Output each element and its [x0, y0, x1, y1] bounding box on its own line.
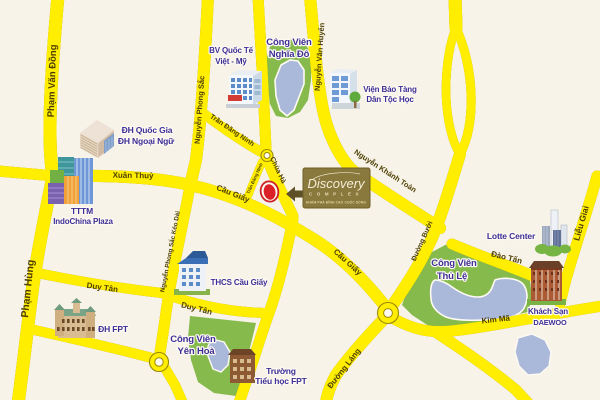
svg-text:Trường: Trường — [266, 366, 296, 376]
svg-text:KHÁM PHÁ ĐỈNH CAO CUỘC SỐNG: KHÁM PHÁ ĐỈNH CAO CUỘC SỐNG — [306, 200, 367, 205]
svg-text:Công Viên: Công Viên — [266, 37, 312, 48]
svg-text:Công Viên: Công Viên — [431, 258, 477, 269]
svg-text:Dân Tộc Học: Dân Tộc Học — [366, 95, 414, 104]
svg-text:Yên Hoà: Yên Hoà — [178, 346, 216, 357]
svg-text:Viện Bảo Tàng: Viện Bảo Tàng — [363, 85, 417, 94]
svg-text:THCS Cầu Giấy: THCS Cầu Giấy — [211, 278, 268, 287]
svg-text:BV Quốc Tế: BV Quốc Tế — [209, 46, 254, 55]
svg-text:Khách Sạn: Khách Sạn — [528, 307, 568, 316]
svg-text:Thủ Lệ: Thủ Lệ — [437, 271, 467, 282]
svg-text:IndoChina Plaza: IndoChina Plaza — [53, 217, 113, 226]
svg-text:DAEWOO: DAEWOO — [533, 318, 567, 327]
svg-text:COMPLEX: COMPLEX — [309, 192, 363, 197]
svg-text:ĐH FPT: ĐH FPT — [98, 324, 129, 334]
svg-text:Tiểu học FPT: Tiểu học FPT — [255, 376, 307, 386]
svg-text:Discovery: Discovery — [307, 176, 366, 191]
svg-text:Nghĩa Đô: Nghĩa Đô — [269, 49, 310, 60]
svg-text:ĐH Quốc Gia: ĐH Quốc Gia — [122, 125, 173, 135]
svg-text:TTTM: TTTM — [71, 206, 93, 216]
svg-text:Lotte Center: Lotte Center — [487, 231, 536, 241]
svg-text:Việt - Mỹ: Việt - Mỹ — [215, 57, 247, 66]
svg-text:Xuân Thuỷ: Xuân Thuỷ — [113, 171, 155, 181]
svg-text:ĐH Ngoại Ngữ: ĐH Ngoại Ngữ — [118, 136, 175, 146]
svg-text:Công Viên: Công Viên — [170, 334, 216, 345]
